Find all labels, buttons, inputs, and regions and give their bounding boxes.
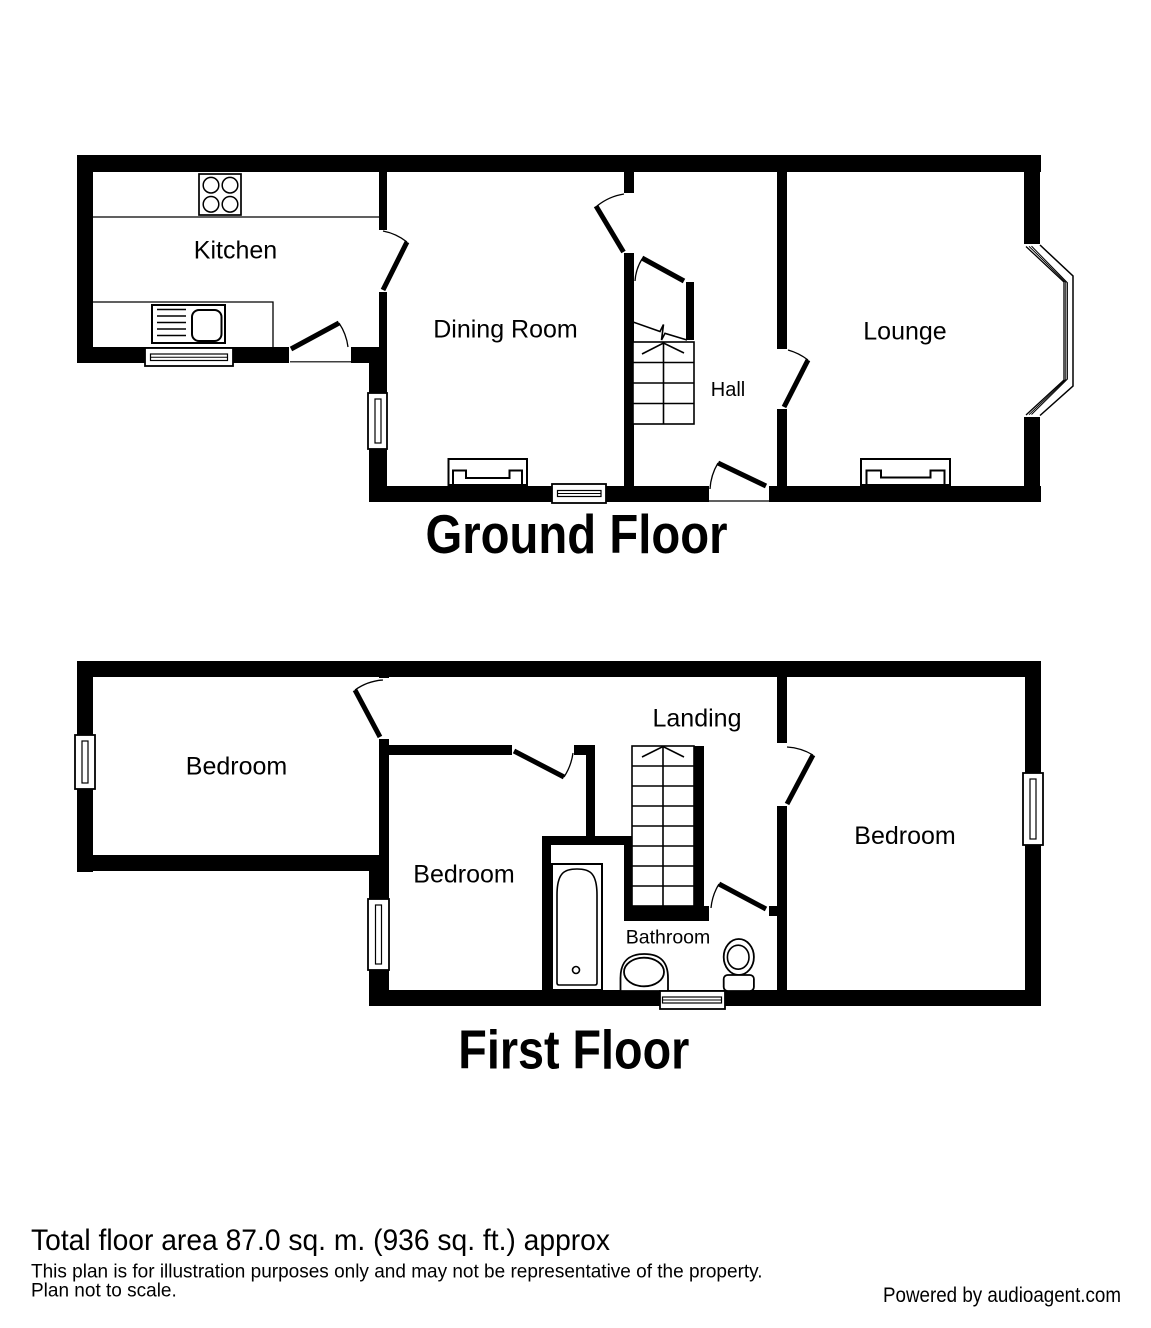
svg-text:This plan is for illustration: This plan is for illustration purposes o… [31,1262,763,1283]
svg-text:Dining Room: Dining Room [433,316,578,344]
svg-text:Hall: Hall [711,379,745,401]
svg-text:First Floor: First Floor [458,1019,689,1081]
svg-text:Powered by audioagent.com: Powered by audioagent.com [883,1283,1121,1307]
svg-text:Total floor area 87.0 sq. m. (: Total floor area 87.0 sq. m. (936 sq. ft… [31,1224,610,1257]
svg-text:Bedroom: Bedroom [854,822,955,850]
svg-text:Kitchen: Kitchen [194,237,277,265]
svg-text:Lounge: Lounge [863,318,946,346]
svg-text:Ground Floor: Ground Floor [426,503,728,565]
svg-text:Landing: Landing [653,705,742,733]
svg-text:Bedroom: Bedroom [186,753,287,781]
svg-text:Bedroom: Bedroom [413,861,514,889]
svg-text:Bathroom: Bathroom [626,927,711,949]
svg-text:Plan not to scale.: Plan not to scale. [31,1281,177,1302]
